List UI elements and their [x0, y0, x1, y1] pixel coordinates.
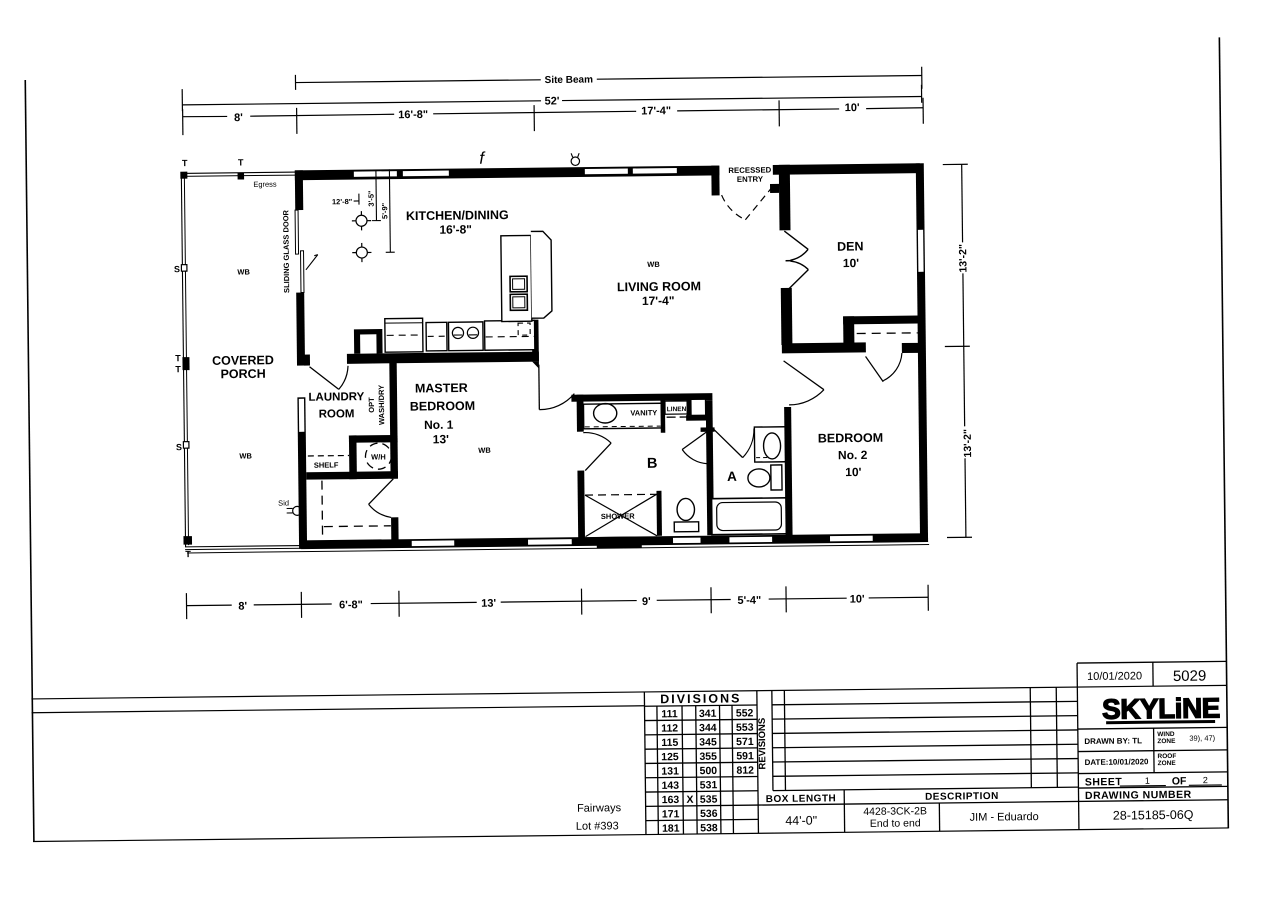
svg-text:552: 552	[736, 707, 754, 719]
svg-text:ROOM: ROOM	[319, 408, 355, 420]
svg-text:9': 9'	[642, 596, 651, 608]
svg-text:PORCH: PORCH	[220, 367, 265, 382]
svg-text:44'-0": 44'-0"	[785, 814, 817, 828]
svg-text:No. 2: No. 2	[838, 448, 868, 462]
svg-text:T: T	[175, 353, 181, 363]
svg-text:553: 553	[736, 722, 754, 734]
svg-text:3'-5": 3'-5"	[367, 190, 376, 207]
svg-text:VANITY: VANITY	[630, 408, 657, 417]
svg-text:WB: WB	[239, 451, 252, 460]
svg-text:T: T	[175, 364, 181, 374]
svg-text:Fairways: Fairways	[577, 802, 622, 815]
svg-text:BOX LENGTH: BOX LENGTH	[766, 793, 837, 805]
svg-text:531: 531	[700, 779, 718, 791]
svg-text:181: 181	[662, 823, 680, 835]
svg-text:DEN: DEN	[837, 239, 864, 253]
svg-text:BEDROOM: BEDROOM	[818, 431, 883, 446]
svg-text:T: T	[238, 157, 244, 167]
svg-text:SHELF: SHELF	[314, 460, 339, 469]
svg-text:RECESSED: RECESSED	[728, 165, 771, 174]
svg-text:28-15185-06Q: 28-15185-06Q	[1113, 808, 1194, 823]
svg-text:12'-8": 12'-8"	[332, 197, 353, 206]
svg-text:16'-8": 16'-8"	[398, 109, 428, 121]
svg-text:536: 536	[700, 808, 718, 820]
svg-text:4428-3CK-2B: 4428-3CK-2B	[863, 805, 927, 818]
svg-text:WB: WB	[237, 267, 250, 276]
svg-text:13'-2": 13'-2"	[962, 429, 974, 458]
svg-text:T: T	[182, 158, 188, 168]
svg-text:SLIDING GLASS DOOR: SLIDING GLASS DOOR	[281, 209, 291, 293]
svg-text:355: 355	[699, 751, 717, 763]
svg-text:WASH/DRY: WASH/DRY	[377, 385, 386, 425]
svg-text:A: A	[727, 469, 737, 484]
svg-text:500: 500	[700, 765, 718, 777]
svg-text:143: 143	[661, 780, 679, 792]
svg-text:REVISIONS: REVISIONS	[757, 718, 769, 770]
svg-text:ENTRY: ENTRY	[737, 175, 764, 184]
svg-text:DRAWING NUMBER: DRAWING NUMBER	[1085, 789, 1192, 802]
svg-text:535: 535	[700, 794, 718, 806]
svg-text:DESCRIPTION: DESCRIPTION	[925, 791, 999, 803]
svg-text:ZONE: ZONE	[1158, 760, 1177, 767]
svg-text:344: 344	[699, 722, 717, 734]
svg-text:16'-8": 16'-8"	[439, 222, 472, 236]
svg-text:ZONE: ZONE	[1157, 738, 1176, 745]
svg-text:345: 345	[699, 736, 717, 748]
svg-text:BEDROOM: BEDROOM	[410, 399, 475, 414]
svg-text:538: 538	[700, 822, 718, 834]
svg-text:S: S	[176, 442, 182, 452]
svg-text:112: 112	[661, 722, 678, 734]
svg-text:115: 115	[661, 737, 678, 749]
svg-text:Sid: Sid	[278, 498, 289, 507]
svg-text:W/H: W/H	[371, 452, 386, 461]
svg-text:5'-9": 5'-9"	[380, 202, 389, 219]
svg-text:COVERED: COVERED	[212, 353, 274, 368]
svg-text:5029: 5029	[1173, 668, 1207, 685]
svg-text:SHOWER: SHOWER	[601, 512, 635, 521]
svg-text:MASTER: MASTER	[415, 381, 468, 396]
svg-text:WB: WB	[647, 260, 660, 269]
svg-text:Site Beam: Site Beam	[545, 75, 594, 87]
svg-text:39), 47): 39), 47)	[1189, 733, 1215, 742]
svg-text:S: S	[174, 264, 180, 274]
svg-text:10': 10'	[845, 465, 862, 479]
svg-text:10': 10'	[843, 256, 860, 270]
svg-text:OPT: OPT	[367, 397, 376, 413]
svg-text:13': 13'	[433, 432, 450, 446]
svg-text:1: 1	[1145, 776, 1150, 786]
svg-text:LAUNDRY: LAUNDRY	[308, 391, 364, 404]
svg-text:10/01/2020: 10/01/2020	[1087, 670, 1142, 683]
svg-text:No. 1: No. 1	[424, 418, 454, 432]
svg-text:SHEET: SHEET	[1085, 776, 1123, 788]
svg-text:JIM - Eduardo: JIM - Eduardo	[970, 811, 1039, 824]
svg-text:571: 571	[736, 736, 754, 748]
svg-text:591: 591	[736, 750, 754, 762]
svg-text:2: 2	[1203, 775, 1208, 785]
svg-text:6'-8": 6'-8"	[339, 599, 363, 611]
svg-text:LINEN: LINEN	[667, 406, 687, 413]
svg-text:DIVISIONS: DIVISIONS	[660, 691, 741, 706]
svg-text:52': 52'	[545, 95, 560, 107]
svg-text:812: 812	[736, 765, 754, 777]
svg-text:17'-4": 17'-4"	[641, 105, 671, 117]
svg-text:DATE:10/01/2020: DATE:10/01/2020	[1085, 757, 1150, 767]
svg-text:10': 10'	[850, 593, 865, 605]
svg-text:8': 8'	[234, 112, 243, 124]
svg-text:131: 131	[661, 765, 679, 777]
svg-text:End to end: End to end	[870, 817, 921, 830]
svg-text:13': 13'	[481, 598, 496, 610]
svg-text:163: 163	[662, 794, 680, 806]
svg-text:X: X	[686, 794, 693, 806]
svg-text:Egress: Egress	[253, 180, 277, 189]
svg-text:DRAWN BY: TL: DRAWN BY: TL	[1084, 736, 1142, 746]
svg-text:LIVING ROOM: LIVING ROOM	[617, 279, 701, 294]
svg-text:171: 171	[662, 808, 680, 820]
svg-text:5'-4": 5'-4"	[737, 595, 761, 607]
svg-text:OF: OF	[1172, 775, 1187, 787]
svg-text:111: 111	[661, 708, 678, 720]
svg-text:13'-2": 13'-2"	[957, 244, 969, 273]
svg-text:17'-4": 17'-4"	[642, 294, 675, 308]
svg-text:B: B	[647, 456, 658, 472]
svg-text:KITCHEN/DINING: KITCHEN/DINING	[406, 208, 509, 223]
svg-text:T: T	[185, 549, 191, 559]
svg-text:SKYLiNE: SKYLiNE	[1102, 692, 1220, 724]
svg-text:341: 341	[699, 708, 717, 720]
svg-text:10': 10'	[845, 102, 860, 114]
svg-text:8': 8'	[238, 600, 247, 612]
svg-text:WB: WB	[478, 446, 491, 455]
svg-text:125: 125	[661, 751, 679, 763]
svg-text:Lot #393: Lot #393	[576, 820, 619, 832]
